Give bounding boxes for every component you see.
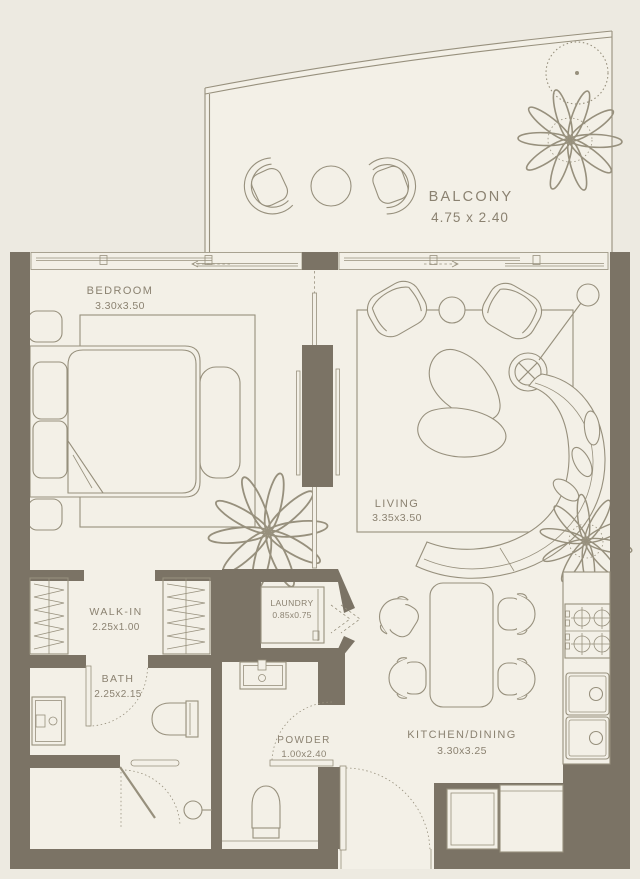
window-pier	[302, 252, 338, 270]
bath-dims: 2.25x2.15	[94, 689, 142, 700]
tv-icon	[297, 371, 301, 475]
walk-in-dims: 2.25x1.00	[92, 622, 140, 633]
bedroom-label: BEDROOM	[87, 285, 154, 297]
living-window	[339, 253, 608, 270]
toilet-icon	[152, 701, 198, 737]
living-label: LIVING	[375, 498, 419, 510]
side-table	[439, 297, 465, 323]
fridge-icon	[447, 789, 498, 849]
pillow	[33, 362, 67, 419]
kitchen-dims: 3.30x3.25	[437, 745, 487, 757]
pillow	[33, 421, 67, 478]
nightstand	[28, 499, 62, 530]
powder-dims: 1.00x2.40	[281, 749, 326, 760]
toilet-icon	[252, 786, 280, 838]
living-dims: 3.35x3.50	[372, 512, 422, 524]
bench	[200, 367, 240, 478]
tv-icon	[336, 369, 340, 475]
left-wall	[10, 252, 30, 869]
floor-plan-drawing: BALCONY 4.75 x 2.40	[0, 0, 640, 879]
nightstand	[28, 311, 62, 342]
walk-in-label: WALK-IN	[89, 606, 142, 618]
counter	[500, 785, 563, 852]
dining-table	[430, 583, 493, 707]
bedroom-window	[31, 253, 302, 270]
balcony-label: BALCONY	[429, 189, 514, 205]
vanity-sink	[240, 660, 286, 689]
bed	[30, 346, 200, 497]
laundry-dims: 0.85x0.75	[272, 610, 311, 620]
bath-label: BATH	[102, 673, 135, 685]
floor-plan: BALCONY 4.75 x 2.40	[0, 0, 640, 879]
kitchen-counter	[563, 572, 610, 764]
bedroom-dims: 3.30x3.50	[95, 300, 145, 312]
kitchen-label: KITCHEN/DINING	[407, 729, 516, 741]
vanity-sink	[32, 697, 65, 745]
bottom-wall-left	[10, 849, 338, 869]
right-wall	[610, 252, 630, 869]
balcony-dims: 4.75 x 2.40	[431, 210, 509, 225]
towel-rail	[131, 760, 179, 766]
laundry-label: LAUNDRY	[270, 598, 313, 608]
round-table	[311, 166, 351, 206]
entry-door-leaf	[340, 766, 346, 850]
powder-label: POWDER	[277, 735, 330, 746]
